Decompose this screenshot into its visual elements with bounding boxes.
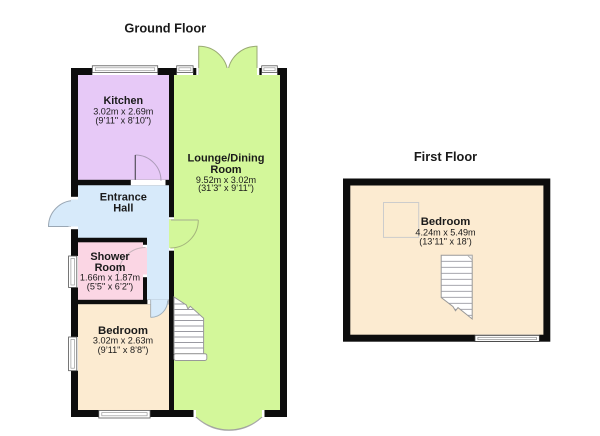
svg-text:Ground Floor: Ground Floor [124,21,206,36]
svg-text:(9’11" x 8’8"): (9’11" x 8’8") [98,345,149,355]
svg-text:(5’5" x 6’2"): (5’5" x 6’2") [87,282,133,292]
svg-text:Lounge/Dining: Lounge/Dining [188,153,265,165]
svg-text:Hall: Hall [113,203,133,215]
svg-text:(9’11" x 8’10"): (9’11" x 8’10") [95,116,151,126]
svg-text:3.02m x 2.63m: 3.02m x 2.63m [93,335,153,345]
svg-text:First Floor: First Floor [414,149,477,164]
svg-text:Bedroom: Bedroom [421,216,471,228]
svg-text:(31’3" x 9’11"): (31’3" x 9’11") [198,183,254,193]
svg-text:(13’11" x 18’): (13’11" x 18’) [419,237,472,247]
svg-text:Kitchen: Kitchen [104,95,144,107]
